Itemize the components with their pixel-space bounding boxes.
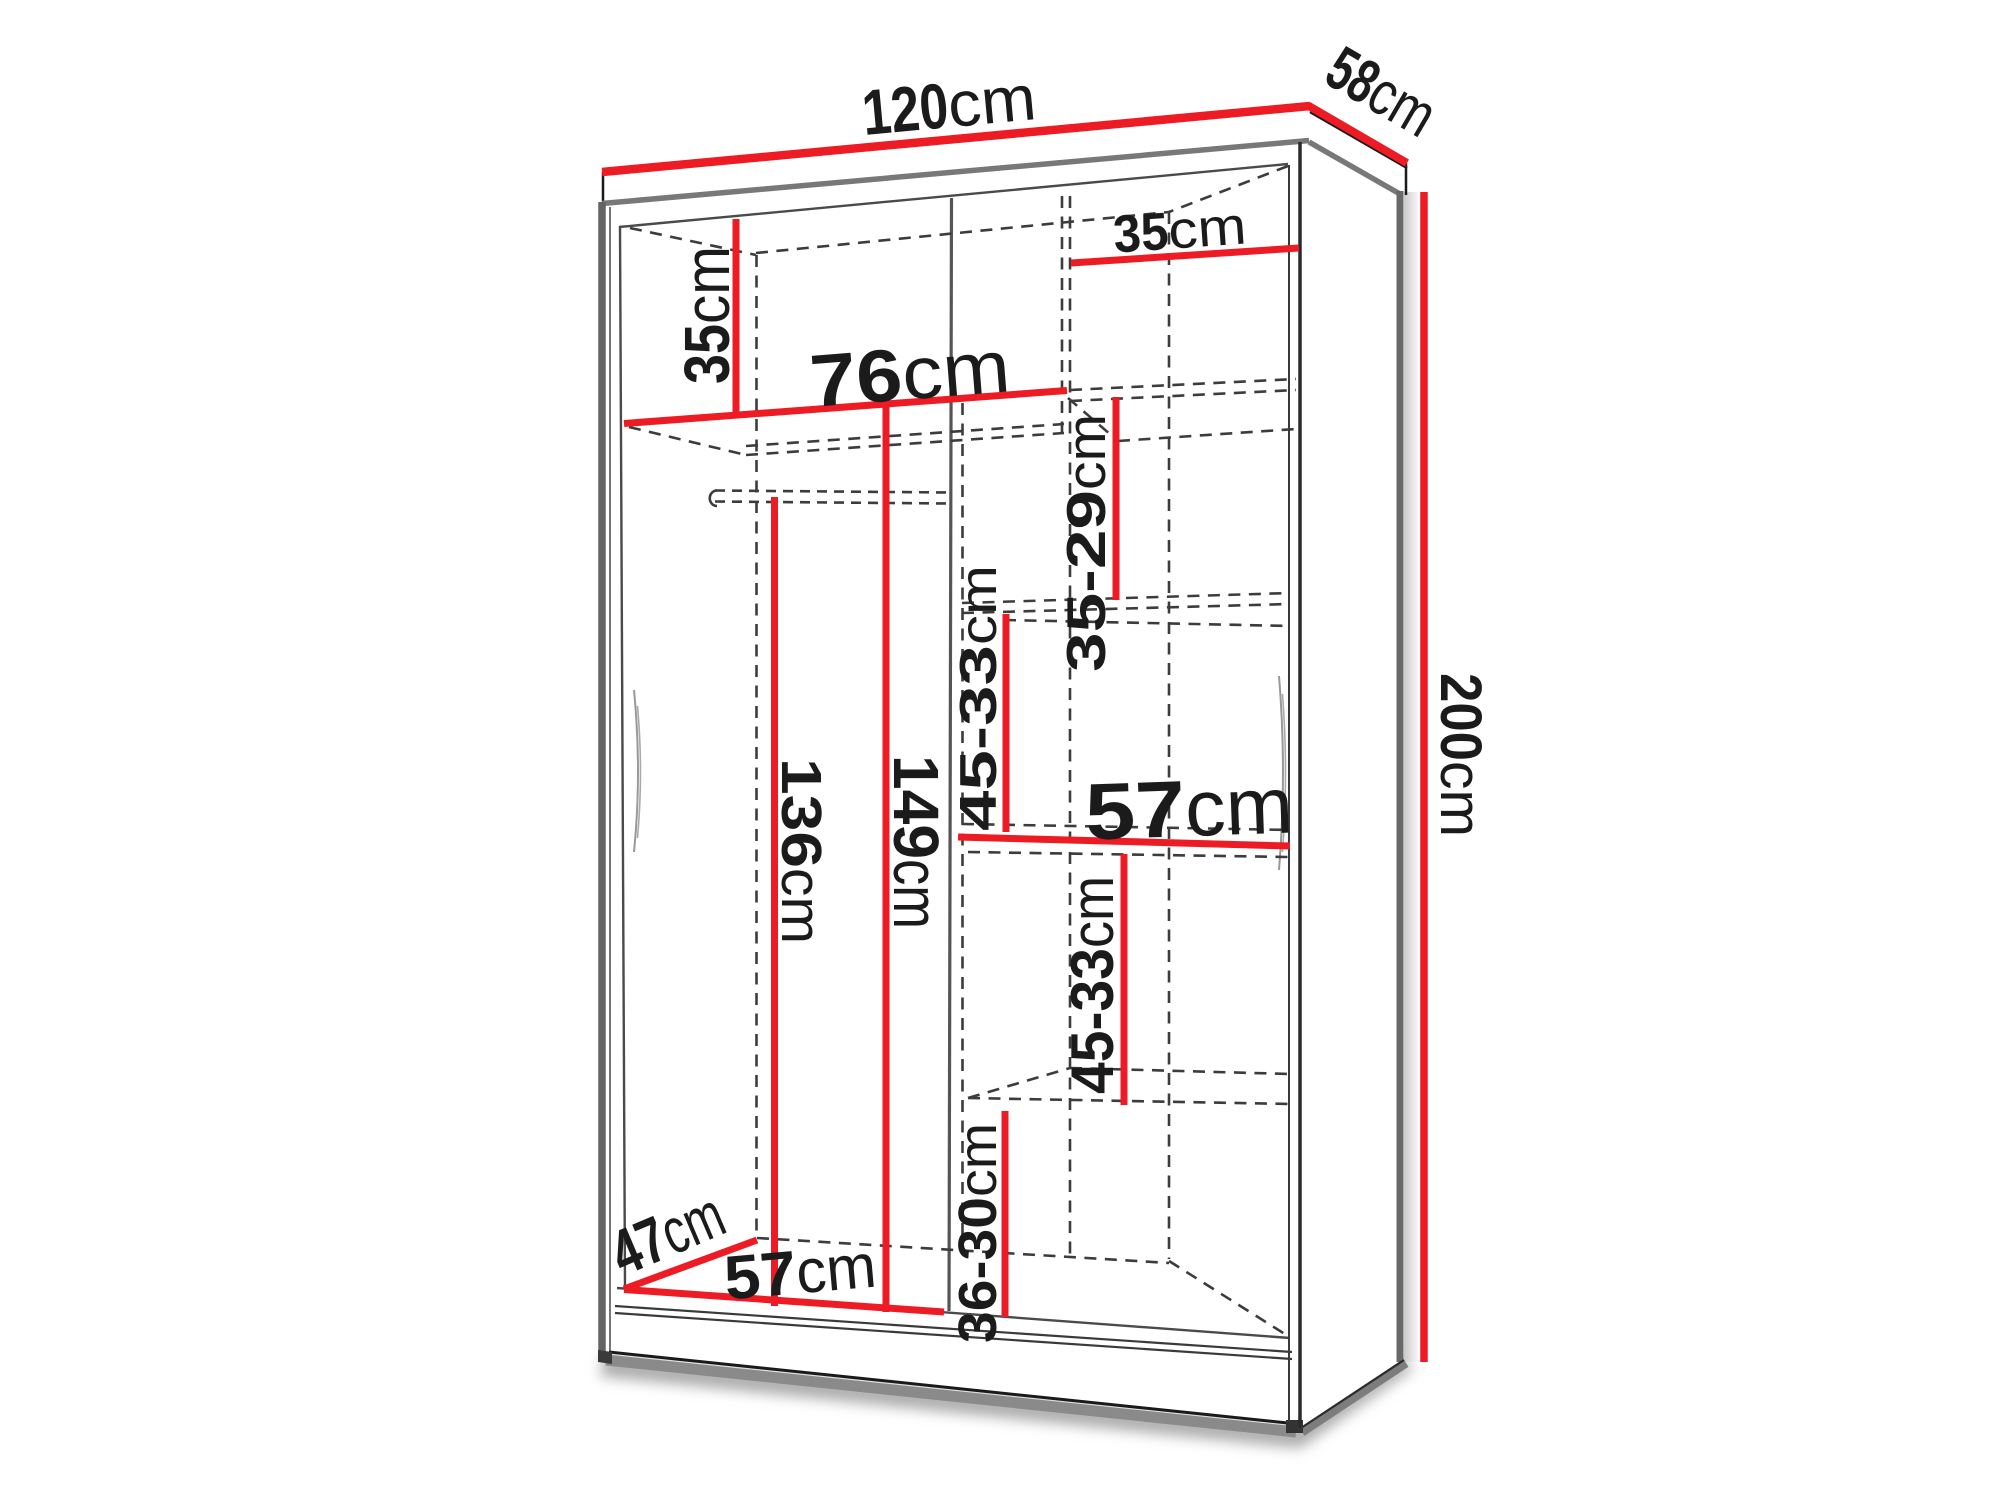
svg-text:200cm: 200cm <box>1428 673 1493 837</box>
svg-text:76cm: 76cm <box>807 324 1013 422</box>
svg-text:35cm: 35cm <box>1111 196 1248 264</box>
svg-text:45-33cm: 45-33cm <box>1059 876 1126 1094</box>
svg-text:57cm: 57cm <box>1084 760 1295 856</box>
svg-text:45-33cm: 45-33cm <box>950 565 1008 831</box>
svg-text:136cm: 136cm <box>769 758 833 944</box>
svg-text:35cm: 35cm <box>671 246 743 384</box>
svg-text:149cm: 149cm <box>880 755 952 929</box>
svg-text:36-30cm: 36-30cm <box>948 1123 1008 1343</box>
svg-text:57cm: 57cm <box>721 1232 878 1314</box>
svg-text:35-29cm: 35-29cm <box>1055 414 1117 672</box>
